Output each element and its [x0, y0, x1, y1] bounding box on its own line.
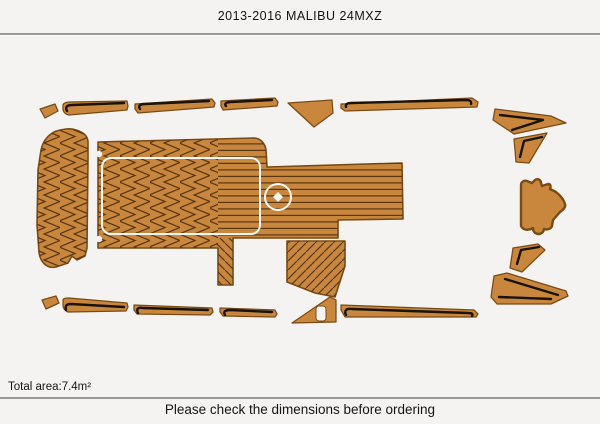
deck-pieces-canvas: [0, 0, 600, 424]
helm-pad: [521, 179, 565, 234]
starboard-gunwale-trim-3: [220, 308, 277, 317]
port-gunwale-corner: [40, 104, 58, 118]
product-image: 2013-2016 MALIBU 24MXZ: [0, 0, 600, 424]
port-gunwale-trim-2: [135, 99, 215, 113]
rear-sunpad: [285, 239, 347, 299]
starboard-gunwale-trim-2: [134, 305, 213, 315]
bottom-divider-line: [0, 397, 600, 399]
starboard-gunwale-corner: [42, 296, 59, 309]
stern-wing-lower: [491, 273, 568, 304]
bow-wing-upper: [493, 109, 566, 134]
starboard-gunwale-trim-1: [63, 298, 128, 312]
footer-note: Please check the dimensions before order…: [0, 402, 600, 417]
bow-wing-lower: [514, 133, 547, 163]
main-cockpit-pad: [96, 136, 405, 287]
stern-wing-upper: [510, 244, 545, 272]
deck-notch: [96, 236, 102, 242]
port-gunwale-trim-1: [63, 101, 128, 115]
starboard-gunwale-trim-4: [341, 305, 478, 317]
total-area-label: Total area:7.4m²: [8, 381, 91, 393]
port-gunwale-trim-4: [341, 98, 478, 111]
filler-cutout: [316, 306, 326, 321]
port-gunwale-trim-3: [221, 98, 278, 110]
port-bow-filler: [288, 100, 333, 127]
deck-notch: [96, 151, 102, 157]
bow-pad: [36, 128, 90, 270]
starboard-bow-filler: [292, 297, 336, 323]
